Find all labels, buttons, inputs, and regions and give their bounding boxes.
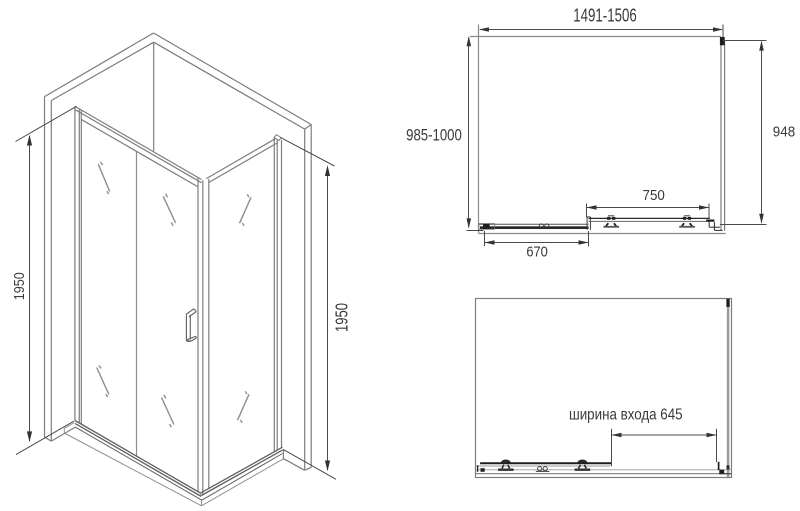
svg-text:670: 670 xyxy=(526,244,548,261)
svg-text:985-1000: 985-1000 xyxy=(406,126,462,145)
svg-text:ширина входа 645: ширина входа 645 xyxy=(569,407,683,424)
svg-text:1950: 1950 xyxy=(12,272,28,300)
svg-text:948: 948 xyxy=(773,123,795,140)
svg-text:1491-1506: 1491-1506 xyxy=(573,6,637,26)
svg-text:750: 750 xyxy=(643,188,665,204)
svg-text:1950: 1950 xyxy=(332,303,352,332)
